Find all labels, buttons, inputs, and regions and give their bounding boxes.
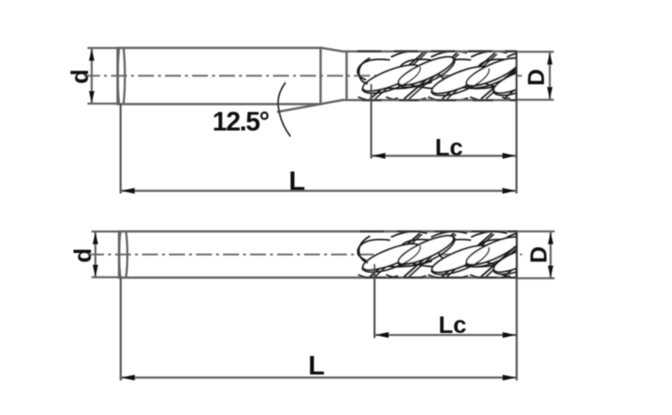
svg-text:12.5°: 12.5° — [212, 107, 269, 137]
svg-text:D: D — [526, 246, 552, 263]
svg-text:L: L — [289, 166, 306, 196]
svg-text:Lc: Lc — [438, 312, 466, 339]
svg-text:d: d — [67, 69, 94, 84]
svg-text:D: D — [523, 69, 549, 86]
svg-text:d: d — [70, 248, 97, 263]
svg-text:Lc: Lc — [435, 135, 463, 162]
svg-text:L: L — [308, 351, 325, 381]
